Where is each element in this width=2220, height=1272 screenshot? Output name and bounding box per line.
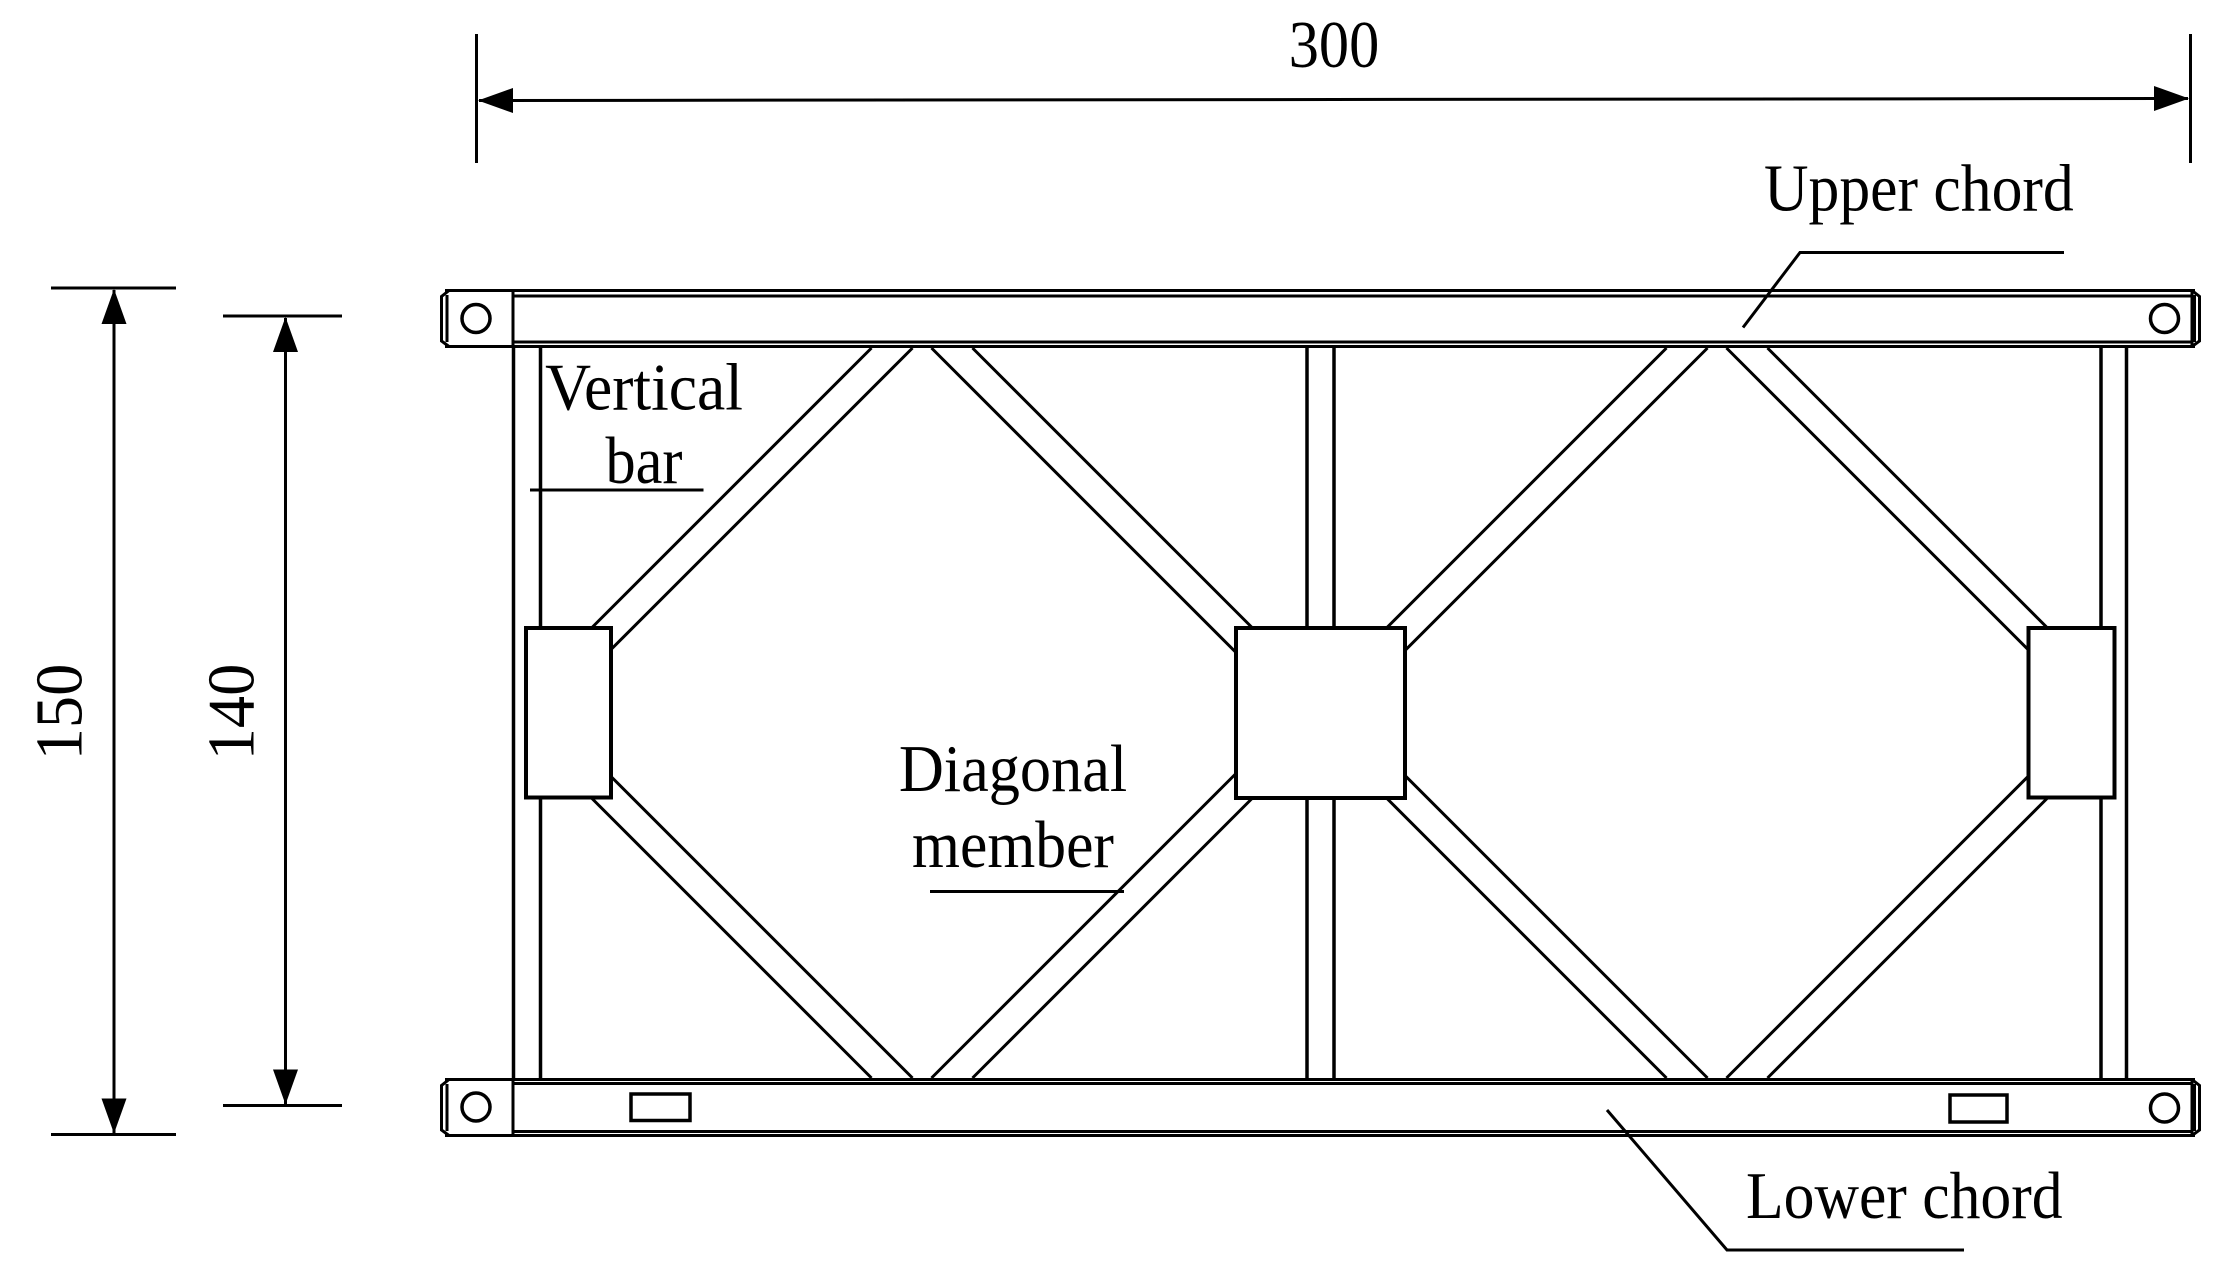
svg-text:bar: bar [606,423,683,498]
svg-text:member: member [912,808,1114,882]
svg-text:Vertical: Vertical [545,351,743,425]
svg-text:300: 300 [1289,7,1379,82]
svg-text:Lower chord: Lower chord [1746,1159,2063,1233]
svg-text:140: 140 [194,664,268,760]
svg-text:Upper chord: Upper chord [1764,151,2074,225]
svg-text:Diagonal: Diagonal [899,731,1127,806]
svg-text:150: 150 [22,664,96,760]
